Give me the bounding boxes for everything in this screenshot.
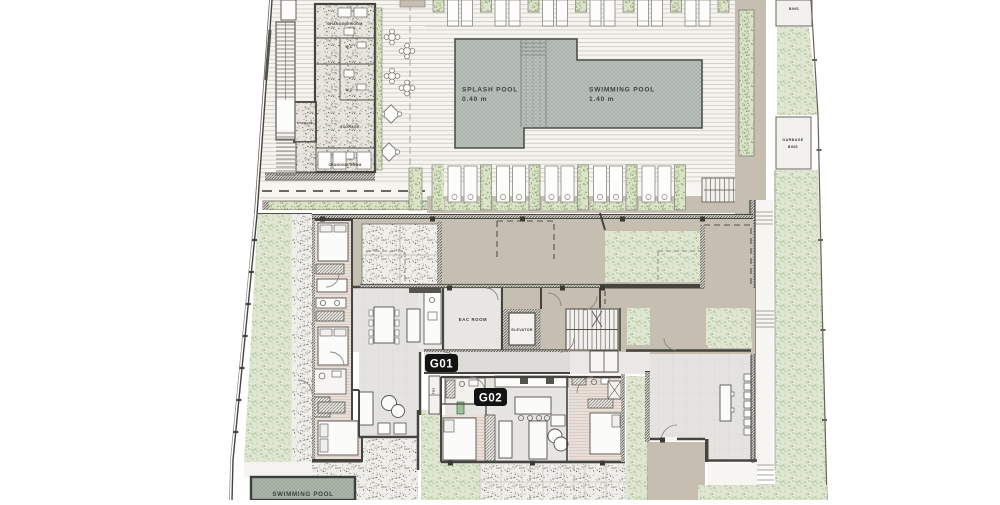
svg-text:G01: G01 <box>430 359 453 371</box>
svg-text:0.40 m: 0.40 m <box>462 96 487 103</box>
svg-text:BINS: BINS <box>788 145 798 149</box>
svg-text:STORAGE: STORAGE <box>340 125 360 129</box>
svg-text:G02: G02 <box>479 393 502 405</box>
svg-text:CHANGING ROOM: CHANGING ROOM <box>328 163 361 167</box>
svg-text:CHANGING ROOM: CHANGING ROOM <box>327 22 362 26</box>
svg-text:GARBAGE: GARBAGE <box>782 138 803 142</box>
svg-text:FO3: FO3 <box>432 388 436 395</box>
svg-text:STORAGE: STORAGE <box>297 121 313 125</box>
svg-text:1.40 m: 1.40 m <box>589 96 614 103</box>
svg-text:W.C: W.C <box>346 45 353 49</box>
svg-text:ELEVATOR: ELEVATOR <box>511 328 532 332</box>
svg-text:SPLASH POOL: SPLASH POOL <box>462 87 518 94</box>
svg-text:SWIMMING POOL: SWIMMING POOL <box>589 87 655 94</box>
svg-text:SWIMMING POOL: SWIMMING POOL <box>272 491 333 498</box>
svg-text:W.C: W.C <box>346 88 353 92</box>
svg-text:BINS: BINS <box>789 7 799 11</box>
svg-text:EAC ROOM: EAC ROOM <box>459 317 487 322</box>
